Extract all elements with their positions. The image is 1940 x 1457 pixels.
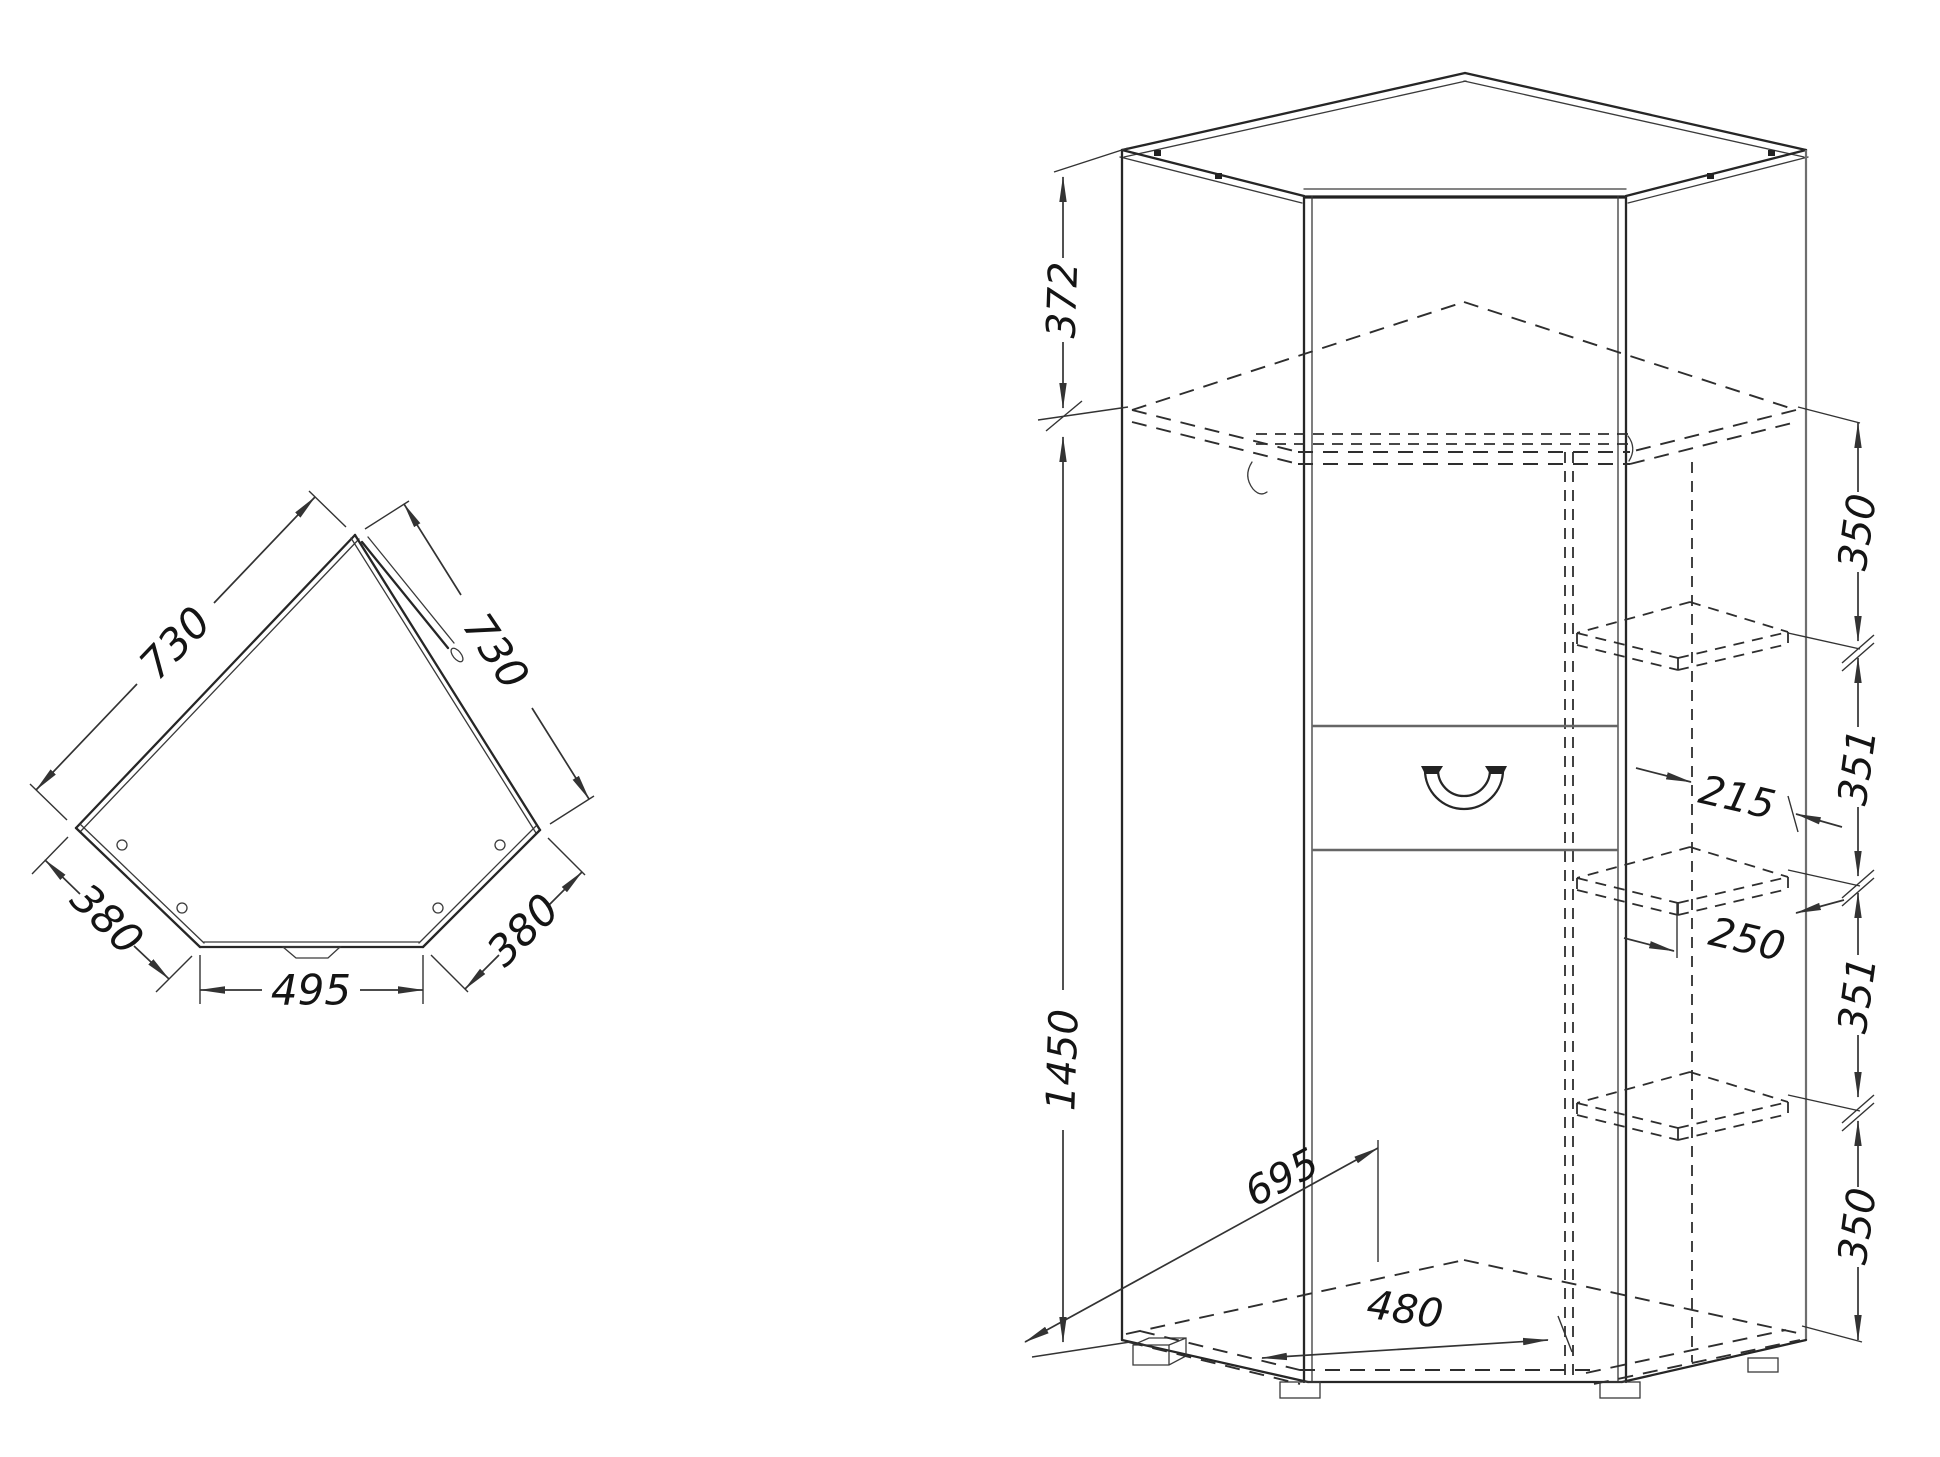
dim-label-351-lower: 351 [1830,954,1886,1036]
dim-label-695: 695 [1237,1140,1326,1216]
plan-view: 730 730 380 380 495 [30,491,594,1015]
rod-bracket-left [1248,462,1267,494]
dim-label-480: 480 [1364,1282,1446,1338]
iso-top-left-edge-inner [1120,157,1302,203]
iso-top-back-right-edge [1465,73,1806,150]
dim-label-730-left: 730 [130,597,221,689]
iso-bottom-left-edge [1122,1340,1308,1382]
screw-dot [1768,150,1775,156]
ext-line [1798,407,1860,423]
break-tick [1046,401,1082,431]
ext-line [309,491,346,527]
shelf-top-dashed-thickness [1132,422,1298,464]
ext-line [431,955,468,992]
quarter-shelf-1 [1577,602,1788,670]
ext-line [548,838,585,875]
technical-drawing-page: 730 730 380 380 495 [0,0,1940,1457]
iso-top-back-left-edge-inner [1124,81,1466,157]
ext-line [550,796,594,824]
dim-arrow-250-left [1624,938,1674,951]
shelf-top-dashed [1132,410,1298,452]
shelf-top-dashed [1630,410,1796,452]
screw-dot [1154,150,1161,156]
plan-hole [433,903,443,913]
iso-top-back-right-edge-inner [1464,81,1804,157]
iso-top-right-edge [1626,150,1806,196]
foot-front-right [1600,1382,1640,1398]
ext-line [1038,407,1128,420]
ext-line [32,837,68,874]
shelf-top-dashed [1464,302,1796,410]
ext-line [1802,1326,1862,1342]
dim-label-350-top: 350 [1830,491,1886,573]
plan-hole [177,903,187,913]
foot-front-left [1280,1382,1320,1398]
dim-arrow-215-right [1796,814,1842,827]
plan-hole [117,840,127,850]
dim-label-495: 495 [271,966,351,1015]
plan-door-inner [368,537,454,643]
ext-line [1788,870,1860,886]
ext-line [1788,633,1860,649]
screw-dot [1707,173,1714,179]
base-dashed-back-right [1464,1260,1802,1334]
dim-label-350-bottom: 350 [1830,1185,1886,1267]
iso-top-back-left-edge [1122,73,1465,150]
quarter-shelf-3 [1577,1072,1788,1140]
dim-label-250: 250 [1705,909,1790,971]
plan-back-left-wall-inner [80,539,359,832]
drawer-handle-outer [1425,770,1503,809]
iso-top-left-edge [1122,150,1304,196]
dim-label-215: 215 [1695,767,1780,829]
quarter-shelf-2 [1577,847,1788,915]
ext-line [1032,1342,1130,1357]
iso-view: 372 1450 350 351 351 350 215 250 695 [1025,73,1886,1398]
dim-arrow-215-left [1636,768,1691,782]
plan-door-handle [449,646,465,663]
dim-label-730-right: 730 [453,604,538,698]
foot-back-right [1748,1358,1778,1372]
plan-back-left-wall [76,535,355,828]
iso-top-right-edge-inner [1628,157,1808,203]
wardrobe-technical-drawing: 730 730 380 380 495 [0,0,1940,1457]
shelf-top-dashed-thickness [1630,422,1796,464]
ext-line [1788,1095,1860,1111]
screw-dot [1215,173,1222,179]
plan-front-handle [283,947,340,958]
plan-hole [495,840,505,850]
dim-label-372: 372 [1039,261,1088,339]
dim-label-351-upper: 351 [1830,726,1886,808]
plan-door [362,542,448,648]
dim-arrow-250-right [1796,900,1844,913]
ext-line [365,501,409,529]
drawer-handle-inner [1438,770,1490,796]
dim-line-695 [1025,1148,1378,1342]
rod-bracket-right [1628,436,1633,461]
shelf-top-dashed [1132,302,1464,410]
dim-label-1450: 1450 [1038,1008,1088,1111]
ext-line [1054,148,1128,172]
ext-line [156,956,192,992]
